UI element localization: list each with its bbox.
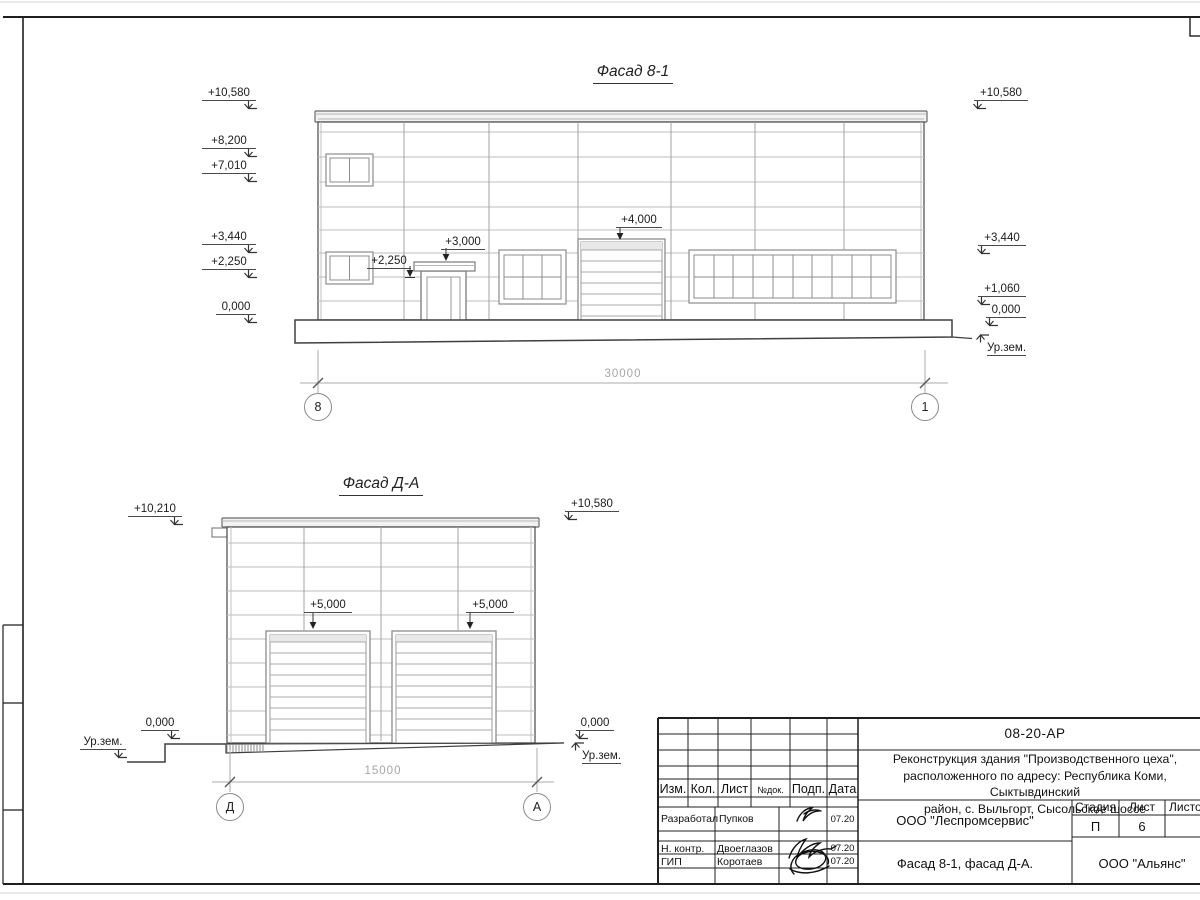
elevation-arrow-down-icon bbox=[243, 149, 258, 159]
elevation-arrow-down-icon bbox=[243, 270, 258, 280]
list-value: 6 bbox=[1119, 819, 1165, 834]
facade2-right-mark-10580: +10,580 bbox=[565, 498, 619, 512]
elevation-arrow-down-icon bbox=[976, 246, 991, 256]
facade1-door-side-callout: +2,250 bbox=[367, 255, 411, 269]
facade1-gate-callout: +4,000 bbox=[616, 214, 662, 228]
col-header-ndok: №док. bbox=[751, 785, 790, 795]
facade-d-a-drawing bbox=[127, 518, 564, 792]
facade2-left-mark-10210: +10,210 bbox=[128, 503, 182, 517]
facade2-title: Фасад Д-А bbox=[306, 475, 456, 496]
elevation-arrow-down-icon bbox=[166, 731, 181, 741]
facade1-right-mark-1060: +1,060 bbox=[978, 283, 1026, 297]
drawing-sheet: Фасад 8-1 +10,580 +8,200 +7,010 +3,440 +… bbox=[0, 0, 1200, 900]
row-developed-name: Пупков bbox=[719, 813, 754, 825]
facade2-ground-left: Ур.зем. bbox=[80, 736, 126, 750]
axis-bubble-a: А bbox=[523, 793, 551, 821]
axis-bubble-d: Д bbox=[216, 793, 244, 821]
elevation-arrow-up-icon bbox=[570, 740, 585, 751]
row-ncontrol-name: Двоеглазов bbox=[717, 843, 773, 855]
row-gip-label: ГИП bbox=[661, 856, 682, 868]
row-developed-date: 07.20 bbox=[827, 814, 858, 825]
facade1-right-mark-3440: +3,440 bbox=[978, 232, 1026, 246]
elevation-arrow-down-icon bbox=[243, 101, 258, 111]
listov-header: Листов bbox=[1165, 800, 1200, 814]
col-header-podp: Подп. bbox=[790, 782, 827, 796]
axis-bubble-1: 1 bbox=[911, 393, 939, 421]
facade2-ground-right: Ур.зем. bbox=[570, 740, 621, 764]
gate-d-a-right bbox=[392, 631, 496, 743]
facade1-left-mark-2250: +2,250 bbox=[202, 256, 256, 270]
facade1-canopy-callout: +3,000 bbox=[441, 236, 485, 250]
stage-header: Стадия bbox=[1072, 800, 1119, 814]
col-header-kol: Кол. bbox=[688, 782, 718, 796]
row-ncontrol-date: 07.20 bbox=[827, 843, 858, 854]
elevation-arrow-down-icon bbox=[984, 318, 999, 328]
facade1-right-mark-0000: 0,000 bbox=[986, 304, 1026, 318]
facade-8-1-drawing bbox=[295, 111, 972, 393]
gate-8-1 bbox=[578, 239, 665, 325]
facade1-left-mark-8200: +8,200 bbox=[202, 135, 256, 149]
titleblock-doc-number: 08-20-АР bbox=[858, 726, 1200, 741]
titleblock-sheet-title: Фасад 8-1, фасад Д-А. bbox=[858, 856, 1072, 871]
facade2-zero-left: 0,000 bbox=[141, 717, 179, 731]
row-gip-name: Коротаев bbox=[717, 856, 762, 868]
facade2-dimension: 15000 bbox=[357, 765, 409, 777]
elevation-arrow-down-icon bbox=[169, 517, 184, 527]
elevation-arrow-up-icon bbox=[975, 332, 990, 343]
facade1-left-mark-10580: +10,580 bbox=[202, 87, 256, 101]
facade2-gate-left-callout: +5,000 bbox=[304, 599, 352, 613]
gate-d-a-left bbox=[266, 631, 370, 743]
project-line-1: Реконструкция здания "Производственного … bbox=[858, 751, 1200, 768]
col-header-data: Дата bbox=[827, 782, 858, 796]
col-header-izm: Изм. bbox=[658, 782, 688, 796]
facade1-right-mark-10580: +10,580 bbox=[974, 87, 1028, 101]
facade1-left-mark-7010: +7,010 bbox=[202, 160, 256, 174]
stage-value: П bbox=[1072, 819, 1119, 834]
facade1-title: Фасад 8-1 bbox=[558, 63, 708, 84]
facade1-left-mark-0000: 0,000 bbox=[216, 301, 256, 315]
list-header: Лист bbox=[1119, 800, 1165, 814]
elevation-arrow-down-icon bbox=[972, 101, 987, 111]
titleblock-org2: ООО "Альянс" bbox=[1072, 856, 1200, 871]
row-ncontrol-label: Н. контр. bbox=[661, 843, 704, 855]
titleblock-org1: ООО "Леспромсервис" bbox=[858, 813, 1072, 828]
elevation-arrow-down-icon bbox=[243, 315, 258, 325]
row-developed-label: Разработал bbox=[661, 813, 718, 825]
col-header-list: Лист bbox=[718, 782, 751, 796]
elevation-arrow-down-icon bbox=[563, 512, 578, 522]
facade1-ground-level-mark: Ур.зем. bbox=[975, 332, 1026, 356]
elevation-arrow-down-icon bbox=[243, 174, 258, 184]
facade2-zero-right: 0,000 bbox=[576, 717, 614, 731]
elevation-arrow-down-icon bbox=[113, 750, 128, 760]
facade1-left-mark-3440: +3,440 bbox=[202, 231, 256, 245]
elevation-arrow-down-icon bbox=[243, 245, 258, 255]
axis-bubble-8: 8 bbox=[304, 393, 332, 421]
facade2-gate-right-callout: +5,000 bbox=[466, 599, 514, 613]
facade1-dimension: 30000 bbox=[597, 368, 649, 380]
project-line-2: расположенного по адресу: Республика Ком… bbox=[858, 768, 1200, 801]
row-gip-date: 07.20 bbox=[827, 856, 858, 867]
